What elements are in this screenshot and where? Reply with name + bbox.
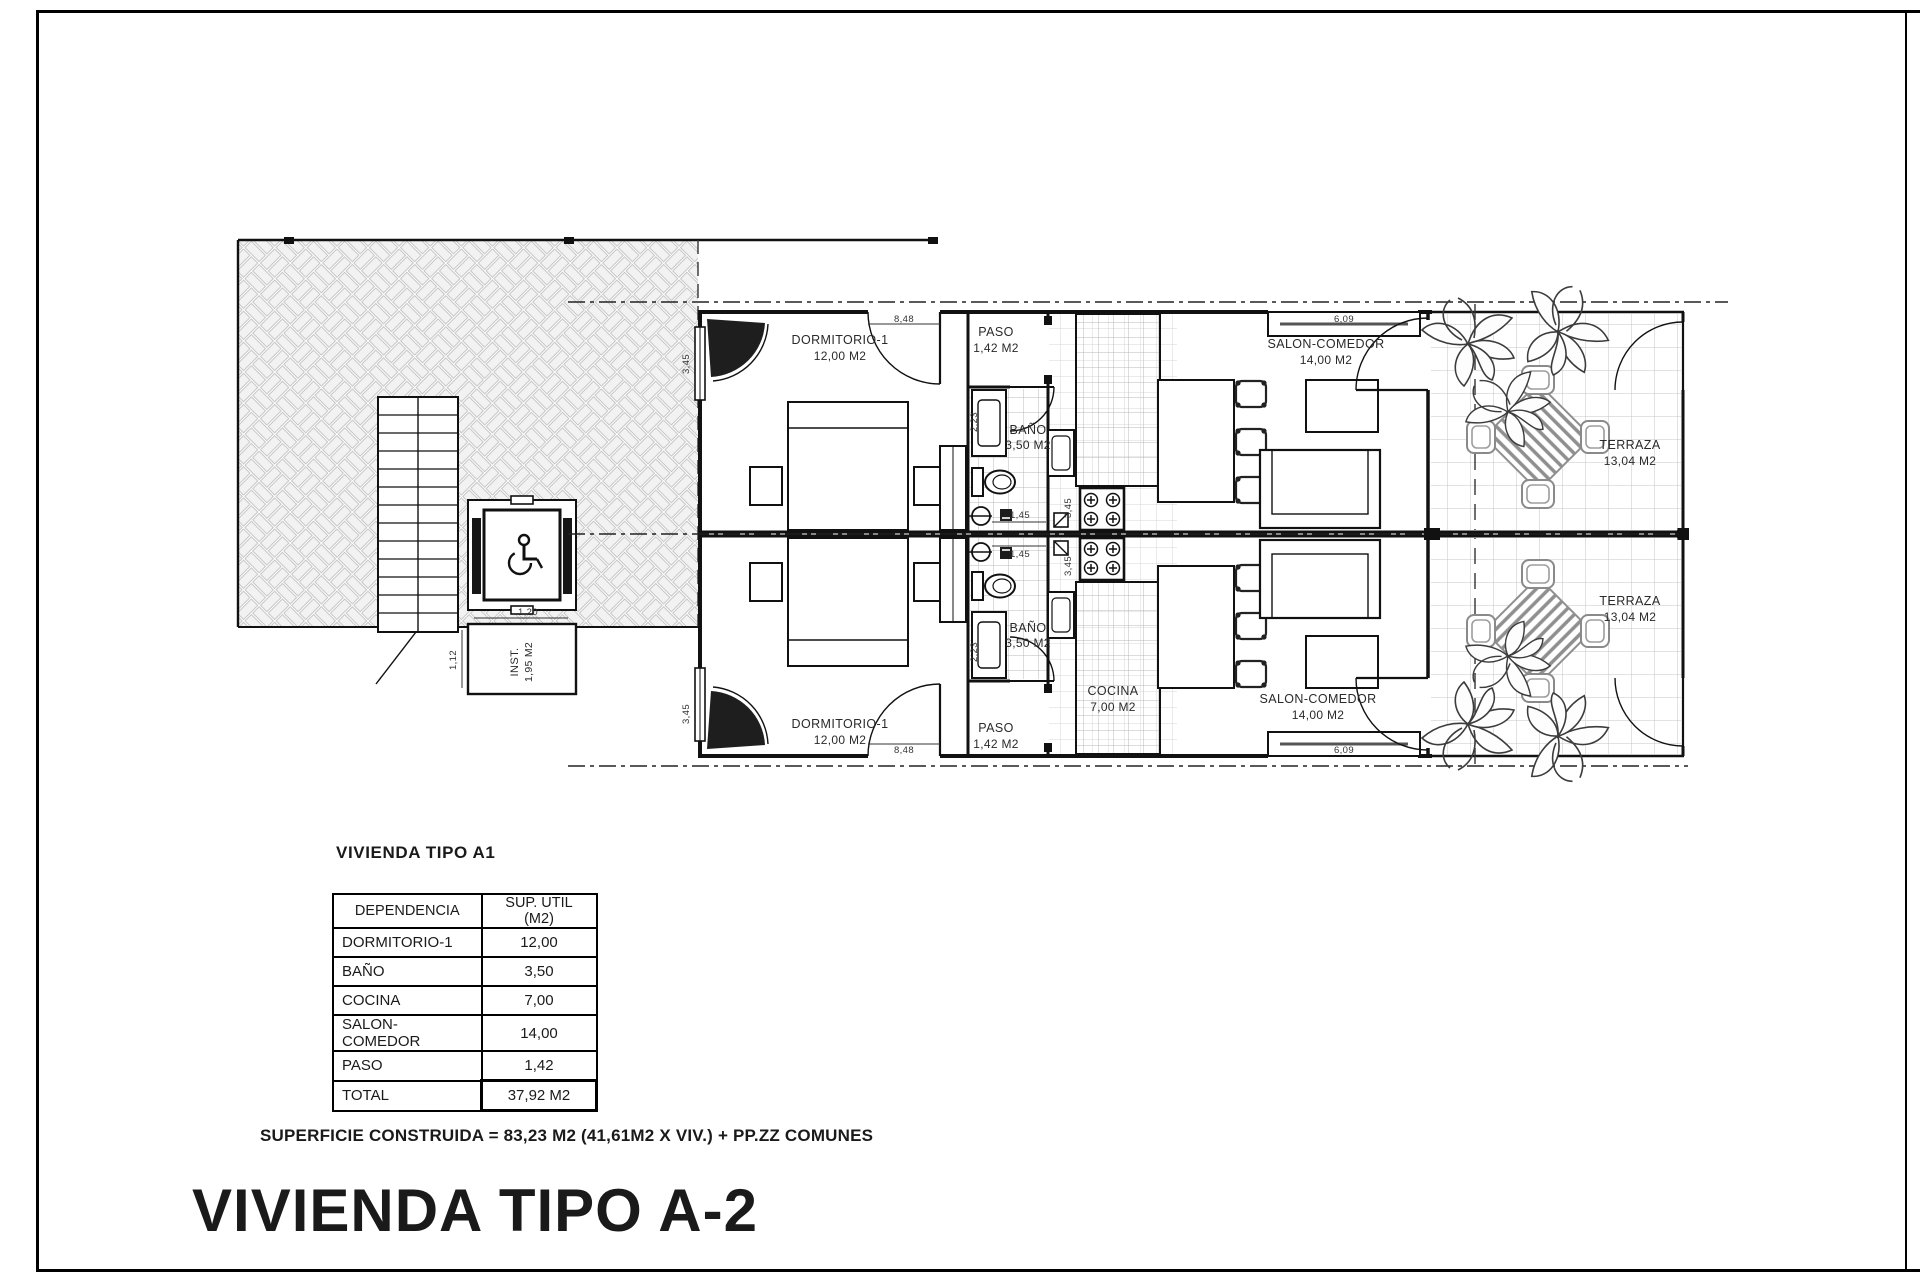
room-area-salon-1: 14,00 M2 (1300, 353, 1352, 367)
row-label: SALON-COMEDOR (333, 1015, 482, 1051)
table-total-row: TOTAL 37,92 M2 (333, 1081, 597, 1111)
built-area-note: SUPERFICIE CONSTRUIDA = 83,23 M2 (41,61M… (260, 1126, 873, 1146)
dim-dorm-width-1: 8,48 (894, 314, 914, 325)
room-area-dormitorio-1: 12,00 M2 (814, 349, 866, 363)
row-label: COCINA (333, 986, 482, 1015)
floor-plan: DORMITORIO-1 12,00 M2 PASO 1,42 M2 BAÑO … (228, 232, 1738, 792)
row-value: 14,00 (482, 1015, 597, 1051)
room-area-terraza-1: 13,04 M2 (1604, 454, 1656, 468)
table-row: COCINA 7,00 (333, 986, 597, 1015)
room-area-paso-1: 1,42 M2 (973, 341, 1018, 355)
table-header-row: DEPENDENCIA SUP. UTIL (M2) (333, 894, 597, 928)
row-label: DORMITORIO-1 (333, 928, 482, 957)
row-value: 1,42 (482, 1051, 597, 1081)
dim-salon-window-2: 6,09 (1334, 745, 1354, 756)
dim-bano-width-1: 1,45 (1010, 510, 1030, 521)
page-title: VIVIENDA TIPO A-2 (192, 1176, 758, 1245)
room-label-salon-1: SALON-COMEDOR (1267, 337, 1384, 351)
area-table: DEPENDENCIA SUP. UTIL (M2) DORMITORIO-1 … (332, 893, 598, 1112)
elevator (468, 496, 576, 614)
room-area-paso-2: 1,42 M2 (973, 737, 1018, 751)
sheet-border-left (36, 10, 39, 1272)
room-area-salon-2: 14,00 M2 (1292, 708, 1344, 722)
unit-a1-upper (695, 267, 1684, 533)
room-label-dormitorio-2: DORMITORIO-1 (792, 717, 889, 731)
row-value: 12,00 (482, 928, 597, 957)
room-area-bano-2: 3,50 M2 (1005, 636, 1050, 650)
room-label-bano-1: BAÑO (1009, 423, 1046, 437)
col-header-sup-util: SUP. UTIL (M2) (482, 894, 597, 928)
dim-dorm-window-1: 3,45 (681, 354, 692, 374)
table-row: SALON-COMEDOR 14,00 (333, 1015, 597, 1051)
row-value: 3,50 (482, 957, 597, 986)
room-area-dormitorio-2: 12,00 M2 (814, 733, 866, 747)
room-label-inst: INST. (509, 648, 521, 677)
dim-cocina-depth-2: 3,45 (1063, 556, 1074, 576)
room-area-terraza-2: 13,04 M2 (1604, 610, 1656, 624)
dim-salon-window-1: 6,09 (1334, 314, 1354, 325)
dim-vanity-2: 2,23 (969, 642, 980, 662)
room-label-terraza-1: TERRAZA (1599, 438, 1660, 452)
room-label-bano-2: BAÑO (1009, 621, 1046, 635)
dim-stair-width: 1,12 (448, 650, 459, 670)
table-row: PASO 1,42 (333, 1051, 597, 1081)
room-label-cocina-2: COCINA (1087, 684, 1138, 698)
unit-a1-lower (695, 535, 1684, 792)
col-header-dependencia: DEPENDENCIA (333, 894, 482, 928)
table-row: DORMITORIO-1 12,00 (333, 928, 597, 957)
sheet-border-right (1905, 10, 1907, 1272)
room-label-dormitorio-1: DORMITORIO-1 (792, 333, 889, 347)
room-label-paso-1: PASO (978, 325, 1013, 339)
dim-dorm-width-2: 8,48 (894, 745, 914, 756)
room-label-terraza-2: TERRAZA (1599, 594, 1660, 608)
room-area-bano-1: 3,50 M2 (1005, 438, 1050, 452)
dim-dorm-window-2: 3,45 (681, 704, 692, 724)
room-area-inst: 1,95 M2 (523, 642, 535, 682)
row-label: BAÑO (333, 957, 482, 986)
total-label: TOTAL (333, 1081, 482, 1111)
dim-bano-width-2: 1,45 (1010, 549, 1030, 560)
row-value: 7,00 (482, 986, 597, 1015)
table-row: BAÑO 3,50 (333, 957, 597, 986)
area-table-heading: VIVIENDA TIPO A1 (336, 843, 495, 863)
sheet-border-bottom (36, 1269, 1920, 1272)
row-label: PASO (333, 1051, 482, 1081)
room-area-cocina-2: 7,00 M2 (1090, 700, 1135, 714)
room-label-salon-2: SALON-COMEDOR (1259, 692, 1376, 706)
total-value: 37,92 M2 (482, 1081, 597, 1111)
room-label-paso-2: PASO (978, 721, 1013, 735)
sheet-border-top (36, 10, 1920, 13)
staircase (376, 397, 458, 684)
dim-elevator-width: 1,20 (518, 607, 538, 618)
dim-vanity-1: 2,23 (969, 412, 980, 432)
dim-cocina-depth-1: 3,45 (1063, 498, 1074, 518)
